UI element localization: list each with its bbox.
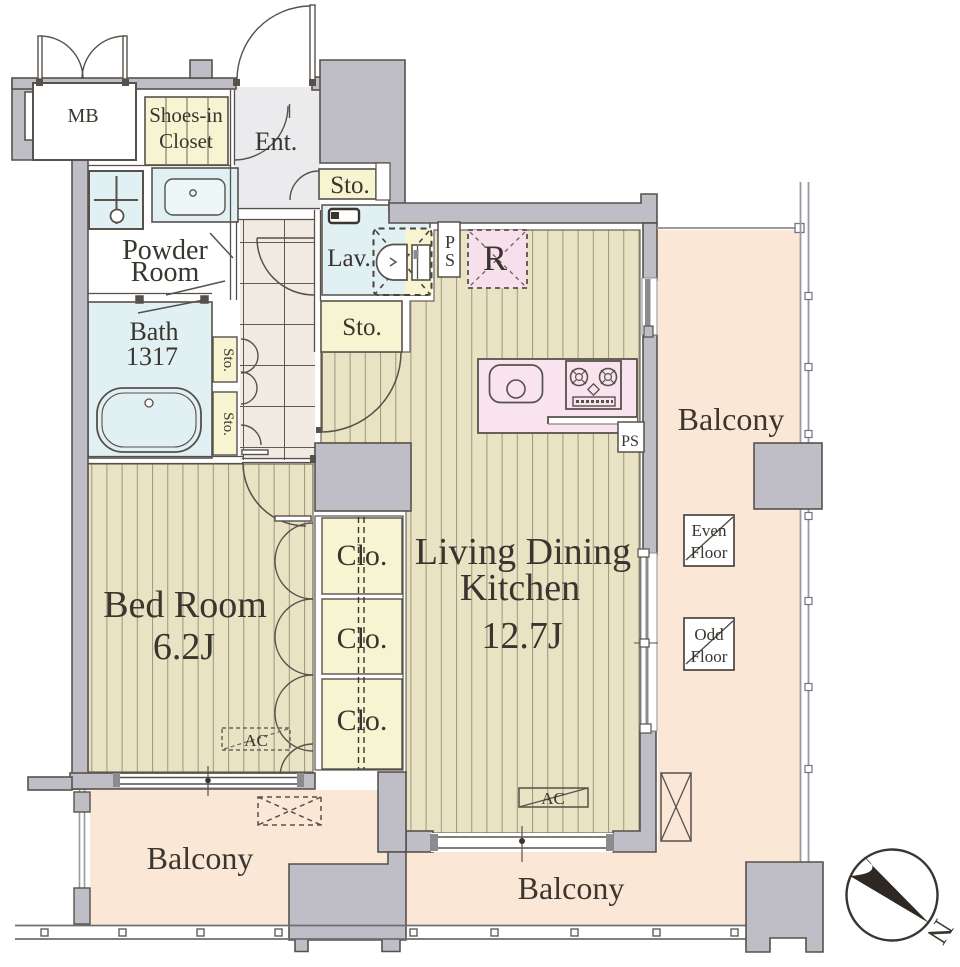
svg-text:P: P [445, 232, 455, 252]
svg-text:Clo.: Clo. [337, 704, 388, 737]
svg-text:Sto.: Sto. [220, 348, 236, 372]
svg-text:Bed Room: Bed Room [103, 584, 267, 626]
svg-text:R: R [483, 238, 507, 278]
svg-text:Clo.: Clo. [337, 622, 388, 655]
svg-text:6.2J: 6.2J [153, 626, 215, 668]
svg-text:Balcony: Balcony [678, 401, 785, 437]
svg-text:12.7J: 12.7J [481, 615, 562, 657]
svg-text:Odd: Odd [694, 625, 724, 644]
svg-text:Clo.: Clo. [337, 539, 388, 572]
svg-text:Floor: Floor [691, 543, 728, 562]
svg-text:Room: Room [131, 257, 200, 288]
svg-text:AC: AC [541, 789, 565, 808]
svg-text:Sto.: Sto. [330, 172, 370, 199]
svg-text:Ent.: Ent. [255, 127, 298, 156]
svg-text:Sto.: Sto. [220, 412, 236, 436]
svg-text:1317: 1317 [126, 342, 178, 371]
svg-text:Floor: Floor [691, 647, 728, 666]
svg-text:Balcony: Balcony [147, 840, 254, 876]
svg-text:Kitchen: Kitchen [460, 567, 580, 609]
svg-text:Balcony: Balcony [518, 870, 625, 906]
svg-text:Lav.: Lav. [327, 245, 371, 272]
svg-text:Even: Even [692, 521, 727, 540]
svg-text:Closet: Closet [159, 129, 213, 153]
svg-text:Shoes-in: Shoes-in [149, 103, 223, 127]
svg-text:MB: MB [67, 105, 98, 127]
svg-text:PS: PS [621, 433, 639, 450]
svg-text:S: S [445, 250, 455, 270]
svg-text:Sto.: Sto. [342, 314, 382, 341]
svg-text:AC: AC [244, 731, 268, 750]
